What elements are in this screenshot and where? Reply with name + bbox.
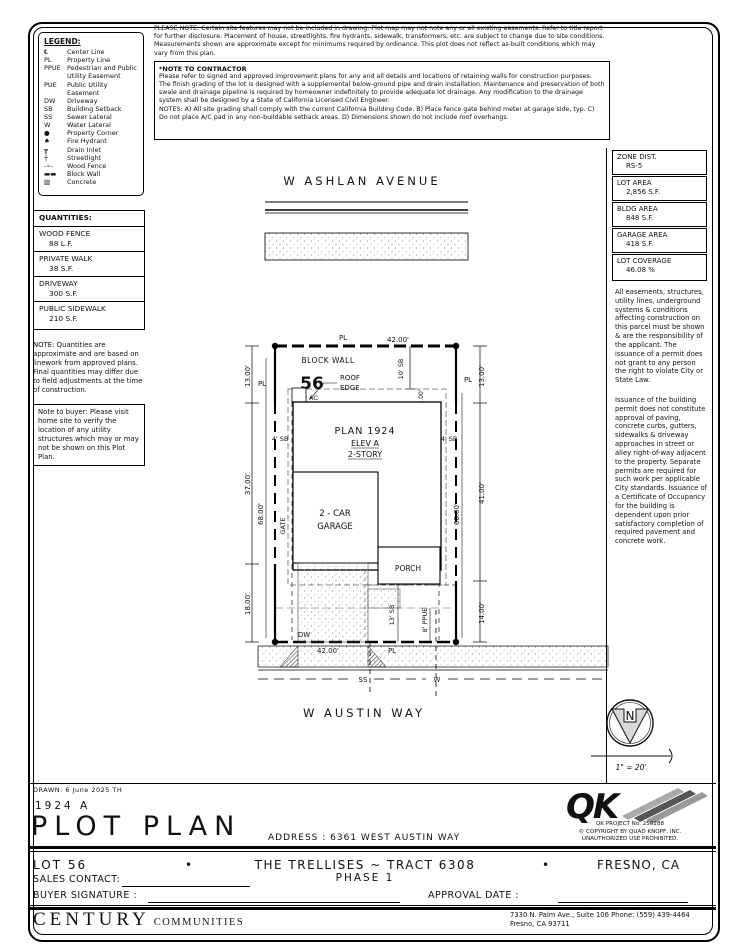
legend-item: -∘-Wood Fence	[44, 162, 140, 170]
pl-top: PL	[339, 334, 347, 342]
legend-item: ♠Fire Hydrant	[44, 137, 140, 145]
lot-coverage-box: LOT COVERAGE46.08 %	[612, 254, 707, 281]
legend-item: ▬▬Block Wall	[44, 170, 140, 178]
drain-inlet-icon: ┳	[44, 146, 67, 154]
buyer-signature-line	[148, 902, 400, 903]
porch-label: PORCH	[395, 564, 421, 573]
private-walk-concrete	[368, 589, 400, 608]
dim-18ft-left: 18.00'	[244, 593, 252, 615]
plot-plan-page: LEGEND: ℄Center Line PLProperty Line PPU…	[0, 0, 730, 948]
garage-label-2: GARAGE	[317, 522, 353, 532]
fire-hydrant-icon: ♠	[44, 137, 67, 145]
garage-area-box: GARAGE AREA418 S.F.	[612, 228, 707, 253]
title-rule-thin	[30, 851, 716, 852]
legend-title: LEGEND:	[44, 37, 140, 46]
dim-41ft-right: 41.00'	[478, 482, 486, 504]
approval-date-label: APPROVAL DATE :	[428, 890, 519, 901]
site-plan-drawing: W ASHLAN AVENUE 13.00' 37.00' 18.00' 68.…	[240, 148, 620, 783]
setback-4ft-right: 4' SB	[441, 435, 458, 443]
buyer-signature-label: BUYER SIGNATURE :	[33, 890, 137, 901]
please-note-text: PLEASE NOTE: Certain site features may n…	[154, 25, 610, 58]
north-arrow: N 1" = 20'	[585, 692, 685, 777]
lot-number-label: LOT 56	[33, 858, 87, 872]
block-wall-label: BLOCK WALL	[302, 356, 355, 365]
zone-district-box: ZONE DIST.RS-5	[612, 150, 707, 175]
qk-logo-text: QK	[566, 787, 622, 824]
document-title: PLOT PLAN	[31, 811, 241, 842]
separator-bullet: •	[185, 858, 192, 872]
legend-item: WWater Lateral	[44, 121, 140, 129]
property-line-symbol: PL	[44, 56, 67, 64]
legend-item: DWDriveway	[44, 97, 140, 105]
driveway-qty: DRIVEWAY300 S.F.	[33, 276, 145, 302]
legend-item: ●Property Corner	[44, 129, 140, 137]
pl-left: PL	[258, 380, 266, 388]
site-address: ADDRESS : 6361 WEST AUSTIN WAY	[268, 833, 460, 843]
pue-symbol: PUE	[44, 81, 67, 97]
legend-item: ℄Center Line	[44, 48, 140, 56]
garage-label-1: 2 - CAR	[319, 509, 351, 519]
water-lateral-label: W	[434, 676, 441, 684]
builder-name: CENTURY	[33, 909, 150, 930]
public-sidewalk-qty: PUBLIC SIDEWALK210 S.F.	[33, 301, 145, 330]
builder-name-suffix: COMMUNITIES	[154, 917, 245, 928]
dim-10ft-setback: 10' SB	[397, 359, 405, 380]
setback-symbol: SB	[44, 105, 67, 113]
legend-item: ┼Streetlight	[44, 154, 140, 162]
street-label-ashlan: W ASHLAN AVENUE	[283, 174, 440, 188]
plan-label: PLAN 1924	[334, 426, 395, 437]
streetlight-icon: ┼	[44, 154, 67, 162]
legend-item: SSSewer Lateral	[44, 113, 140, 121]
driveway-label: DW	[298, 631, 310, 639]
driveway-symbol: DW	[44, 97, 67, 105]
qk-logo: QK	[560, 784, 710, 824]
roof-edge-label-1: ROOF	[340, 374, 360, 382]
contractor-note-title: *NOTE TO CONTRACTOR	[159, 65, 605, 73]
ac-pad	[292, 388, 306, 402]
story-label: 2-STORY	[348, 450, 382, 459]
ashlan-sidewalk-concrete	[265, 233, 468, 260]
legend-item: PLProperty Line	[44, 56, 140, 64]
block-wall-icon: ▬▬	[44, 170, 67, 178]
sewer-lateral-label: SS	[359, 676, 368, 684]
dim-68ft-left: 68.00'	[257, 503, 265, 525]
approval-date-line	[558, 902, 688, 903]
scale-label: 1" = 20'	[616, 763, 647, 772]
private-walk-qty: PRIVATE WALK38 S.F.	[33, 251, 145, 277]
qk-copyright: © COPYRIGHT BY QUAD KNOPF, INC.	[545, 829, 715, 836]
sales-contact-line	[122, 886, 250, 887]
separator-bullet: •	[542, 858, 549, 872]
elev-label: ELEV A	[351, 439, 380, 448]
dim-37ft-left: 37.00'	[244, 473, 252, 495]
phase-label: PHASE 1	[220, 872, 510, 884]
title-rule-thick	[30, 846, 716, 849]
buyer-note-box: Note to buyer: Please visit home site to…	[33, 404, 145, 466]
builder-contact: 7330 N. Palm Ave., Suite 106 Phone: (559…	[510, 911, 690, 929]
water-symbol: W	[44, 121, 67, 129]
dim-13ft-left: 13.00'	[244, 365, 252, 387]
lot-area-box: LOT AREA2,856 S.F.	[612, 176, 707, 201]
legend-item: ▨Concrete	[44, 178, 140, 186]
quantities-title-box: QUANTITIES:	[33, 210, 145, 227]
builder-city: Fresno, CA 93711	[510, 920, 690, 929]
dim-14ft-right: 14.00'	[478, 602, 486, 624]
contractor-note-body: Please refer to signed and approved impr…	[159, 73, 605, 105]
permit-note: Issuance of the building permit does not…	[615, 396, 708, 546]
legend-box: LEGEND: ℄Center Line PLProperty Line PPU…	[38, 32, 144, 196]
legend-item: SBBuilding Setback	[44, 105, 140, 113]
tract-name: THE TRELLISES ~ TRACT 6308	[220, 858, 510, 872]
ac-label: AC	[309, 394, 318, 402]
sales-contact-label: SALES CONTACT:	[33, 874, 120, 885]
dim-13ft-right: 13.00'	[478, 365, 486, 387]
gate-label: GATE	[279, 517, 287, 534]
street-label-austin: W AUSTIN WAY	[303, 706, 425, 720]
centerline-symbol: ℄	[44, 48, 67, 56]
austin-sidewalk-concrete	[258, 646, 608, 667]
contractor-note-list: NOTES: A) All site grading shall comply …	[159, 106, 605, 122]
note-to-contractor-box: *NOTE TO CONTRACTOR Please refer to sign…	[154, 61, 610, 140]
pl-right: PL	[464, 376, 472, 384]
concrete-icon: ▨	[44, 178, 67, 186]
north-letter: N	[626, 709, 635, 723]
ppue-symbol: PPUE	[44, 64, 67, 80]
roof-edge-label-2: EDGE	[340, 384, 360, 392]
legend-item: PPUEPedestrian and Public Utility Easeme…	[44, 64, 140, 80]
qk-unauthorized: UNAUTHORIZED USE PROHIBITED.	[545, 836, 715, 843]
bldg-area-box: BLDG AREA848 S.F.	[612, 202, 707, 227]
qk-project-number: QK PROJECT No. 250288	[545, 821, 715, 828]
footer-rule-thin	[30, 905, 716, 906]
quantities-note: NOTE: Quantities are approximate and are…	[33, 341, 145, 395]
property-corner-icon: ●	[44, 129, 67, 137]
wood-fence-icon: -∘-	[44, 162, 67, 170]
wood-fence-qty: WOOD FENCE88 L.F.	[33, 226, 145, 252]
sewer-symbol: SS	[44, 113, 67, 121]
legend-item: ┳Drain Inlet	[44, 146, 140, 154]
builder-logo: CENTURY COMMUNITIES	[33, 909, 244, 931]
builder-address: 7330 N. Palm Ave., Suite 106 Phone: (559…	[510, 911, 690, 920]
ppue-8ft: 8' PPUE	[421, 608, 429, 633]
legend-item: PUEPublic Utility Easement	[44, 81, 140, 97]
lot-width-top: 42.00'	[387, 336, 409, 344]
easements-note: All easements, structures, utility lines…	[615, 288, 708, 385]
city-label: FRESNO, CA	[597, 858, 680, 872]
drawn-date: DRAWN: 6 June 2025 TH	[33, 786, 122, 794]
